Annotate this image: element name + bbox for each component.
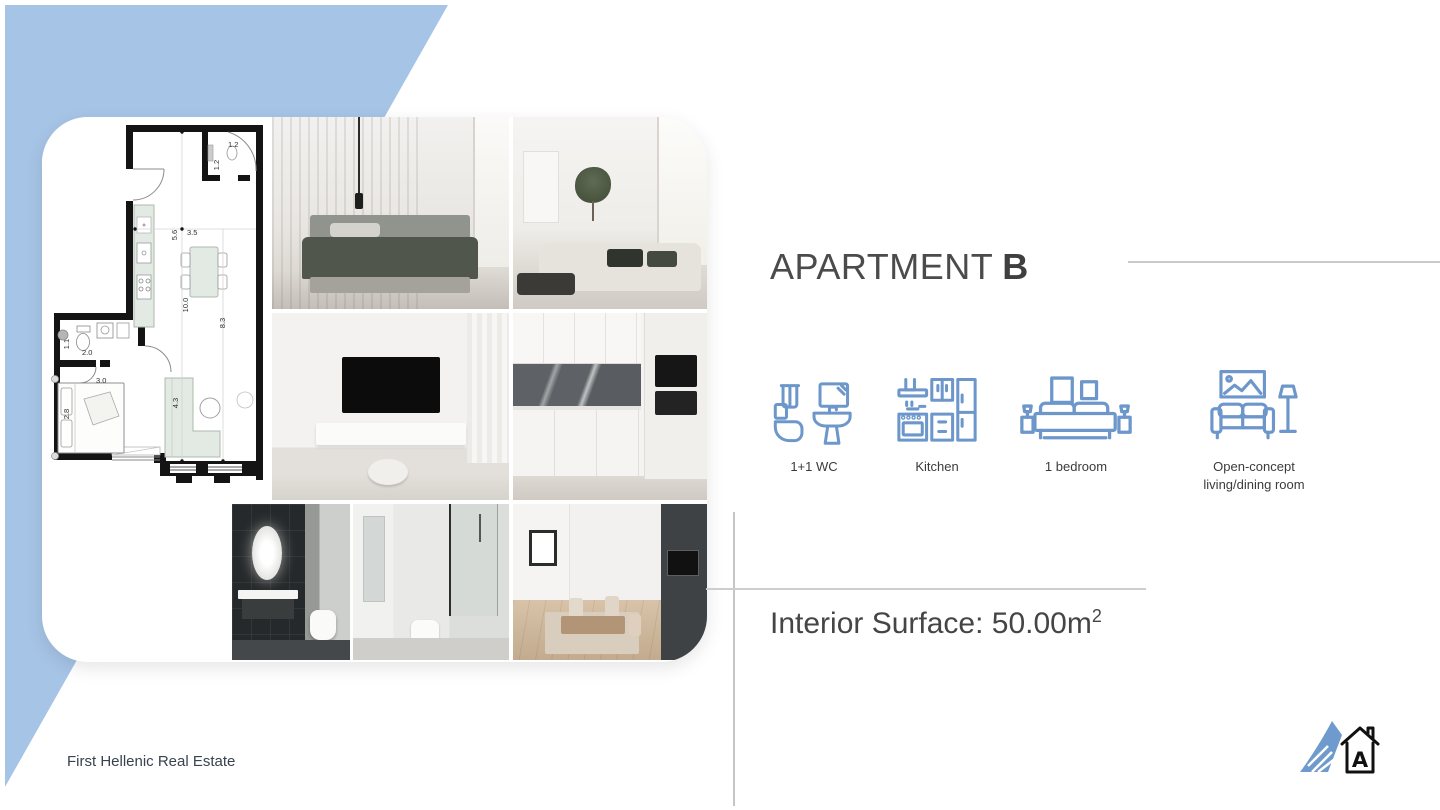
pendant-lamp	[358, 117, 360, 195]
bed-duvet	[302, 237, 478, 279]
surface-superscript: 2	[1092, 606, 1102, 626]
photo-collage-card: 1.2 1.2 5.6 3.5 10.0 8.3 1.1 2.0 3.0 2.8…	[42, 117, 707, 662]
feature-label: 1+1 WC	[768, 458, 860, 476]
mountain-house-logo-icon: A	[1298, 716, 1380, 778]
photo-shower-bathroom	[353, 504, 509, 660]
dim-bath-length: 2.0	[82, 348, 92, 357]
pendant-bulb	[355, 193, 363, 209]
photo-dining-corridor	[513, 504, 707, 660]
kitchen-floor	[513, 476, 707, 500]
dining-chair	[629, 614, 641, 636]
title-bold-letter: B	[1002, 246, 1029, 287]
photo-living-room	[513, 117, 707, 309]
dim-living-width: 3.5	[187, 228, 197, 237]
kitchen-microwave	[655, 391, 697, 415]
kitchen-oven	[655, 355, 697, 387]
tv-curtain	[467, 313, 509, 463]
wc-icon	[768, 374, 860, 454]
dim-bed-width: 3.0	[96, 376, 106, 385]
shower-mirror	[363, 516, 385, 602]
living-plant	[575, 167, 611, 203]
corridor-appliance-column	[661, 504, 707, 660]
page-title: APARTMENTB	[770, 246, 1029, 288]
bedroom-window	[473, 117, 509, 267]
feature-living-room: Open-concept living/dining room	[1190, 374, 1318, 493]
shower-floor	[353, 638, 509, 660]
bathroom-oval-mirror	[252, 526, 282, 580]
tv-pouf	[368, 459, 408, 485]
kitchen-lower-cabinets	[513, 410, 641, 476]
feature-wc: 1+1 WC	[768, 374, 860, 476]
svg-text:A: A	[1352, 748, 1369, 772]
feature-label: Kitchen	[886, 458, 988, 476]
bathroom-counter	[238, 590, 298, 599]
title-divider-line	[1128, 261, 1440, 263]
shower-bar	[479, 514, 481, 542]
dim-sofa-wall: 4.3	[171, 398, 180, 408]
dim-upper-length: 5.6	[170, 230, 179, 240]
dim-bed-length: 2.8	[62, 409, 71, 419]
floor-plan: 1.2 1.2 5.6 3.5 10.0 8.3 1.1 2.0 3.0 2.8…	[42, 117, 272, 502]
company-name: First Hellenic Real Estate	[67, 753, 235, 770]
photo-bedroom	[272, 117, 509, 309]
bedroom-icon	[1014, 374, 1138, 454]
title-regular: APARTMENT	[770, 246, 993, 287]
photo-dark-bathroom	[232, 504, 350, 660]
company-logo: A	[1298, 716, 1380, 778]
surface-value: Interior Surface: 50.00m	[770, 607, 1092, 640]
bathroom-floor	[232, 640, 350, 660]
kitchen-upper-cabinets	[513, 313, 641, 364]
surface-divider-line	[706, 588, 1146, 590]
tv-console	[316, 423, 466, 445]
feature-kitchen: Kitchen	[886, 374, 988, 476]
dim-total-length: 10.0	[181, 298, 190, 313]
sofa-cushion	[607, 249, 643, 267]
dim-living-length: 8.3	[218, 318, 227, 328]
corridor-oven	[667, 550, 699, 576]
bathroom-cabinet	[242, 599, 294, 619]
dim-wc-height: 1.2	[212, 160, 221, 170]
bathroom-toilet	[310, 610, 336, 640]
sofa-cushion	[647, 251, 677, 267]
interior-surface-text: Interior Surface: 50.00m2	[770, 606, 1102, 641]
floor-plan-drawing: 1.2 1.2 5.6 3.5 10.0 8.3 1.1 2.0 3.0 2.8…	[42, 117, 272, 502]
living-room-icon	[1190, 374, 1318, 454]
dim-wc-width: 1.2	[228, 140, 238, 149]
shower-glass-panel	[449, 504, 498, 616]
corridor-art-frame	[529, 530, 557, 566]
living-coffee-table	[517, 273, 575, 295]
feature-label: 1 bedroom	[1014, 458, 1138, 476]
dim-bath-width: 1.1	[62, 339, 71, 349]
feature-bedroom: 1 bedroom	[1014, 374, 1138, 476]
tv-screen	[342, 357, 440, 413]
photo-tv-wall	[272, 313, 509, 500]
dining-table	[561, 616, 625, 634]
living-shelf-unit	[523, 151, 559, 223]
bed-base	[310, 277, 470, 293]
slide: 1.2 1.2 5.6 3.5 10.0 8.3 1.1 2.0 3.0 2.8…	[0, 0, 1440, 810]
feature-label: Open-concept living/dining room	[1190, 458, 1318, 493]
bed-pillow	[330, 223, 380, 237]
kitchen-icon	[886, 374, 988, 454]
living-plant-stem	[592, 201, 594, 221]
kitchen-marble-backsplash	[513, 364, 641, 406]
photo-kitchen	[513, 313, 707, 500]
vertical-divider-line	[733, 512, 735, 806]
